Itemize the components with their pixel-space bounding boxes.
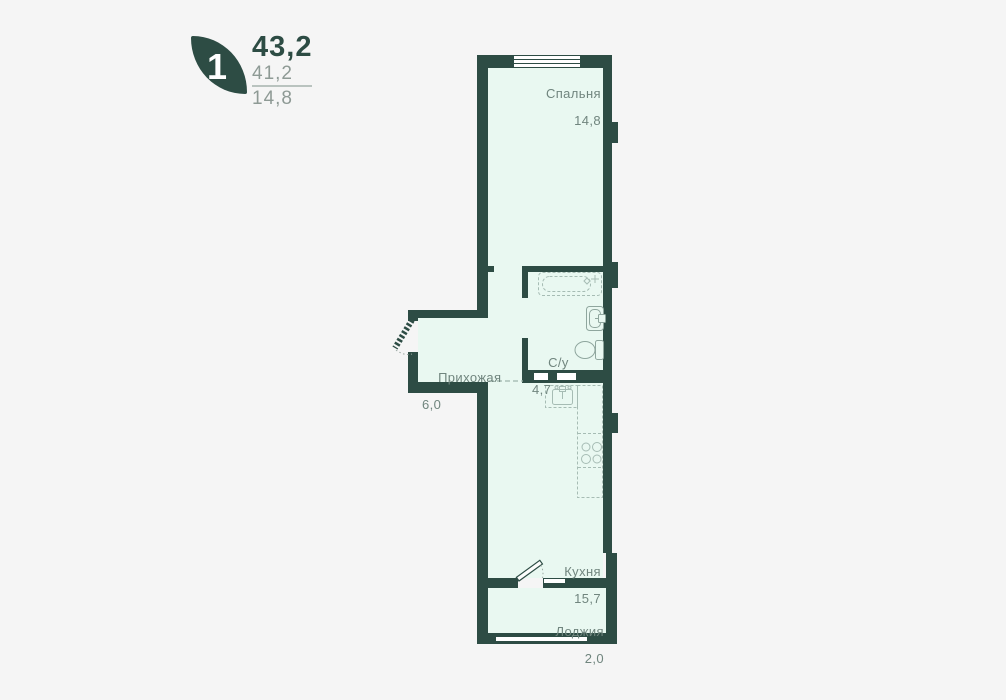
bathroom-label: С/у 4,7 [532, 342, 569, 423]
bedroom-area: 14,8 [480, 114, 601, 128]
bedroom-label: Спальня 14,8 [480, 73, 601, 154]
entrance-door [395, 320, 412, 355]
loggia-area: 2,0 [484, 652, 604, 666]
entrance-door-swing-arc [396, 350, 412, 355]
kitchen-name: Кухня [564, 564, 601, 579]
hallway-name: Прихожая [438, 370, 501, 385]
hallway-area: 6,0 [422, 398, 502, 412]
kitchen-area: 15,7 [480, 592, 601, 606]
loggia-name: Лоджия [556, 624, 604, 639]
loggia-label: Лоджия 2,0 [484, 611, 604, 692]
stove [582, 443, 602, 464]
bathroom-sink [587, 307, 606, 331]
entrance-door-leaf [395, 320, 412, 348]
floorplan-page: 1 43,2 41,2 14,8 [0, 0, 1006, 700]
hallway-label: Прихожая 6,0 [422, 357, 502, 438]
bathtub [539, 273, 602, 296]
toilet [575, 341, 604, 360]
bathroom-name: С/у [548, 355, 569, 370]
bathroom-area: 4,7 [532, 383, 569, 397]
bedroom-name: Спальня [546, 86, 601, 101]
